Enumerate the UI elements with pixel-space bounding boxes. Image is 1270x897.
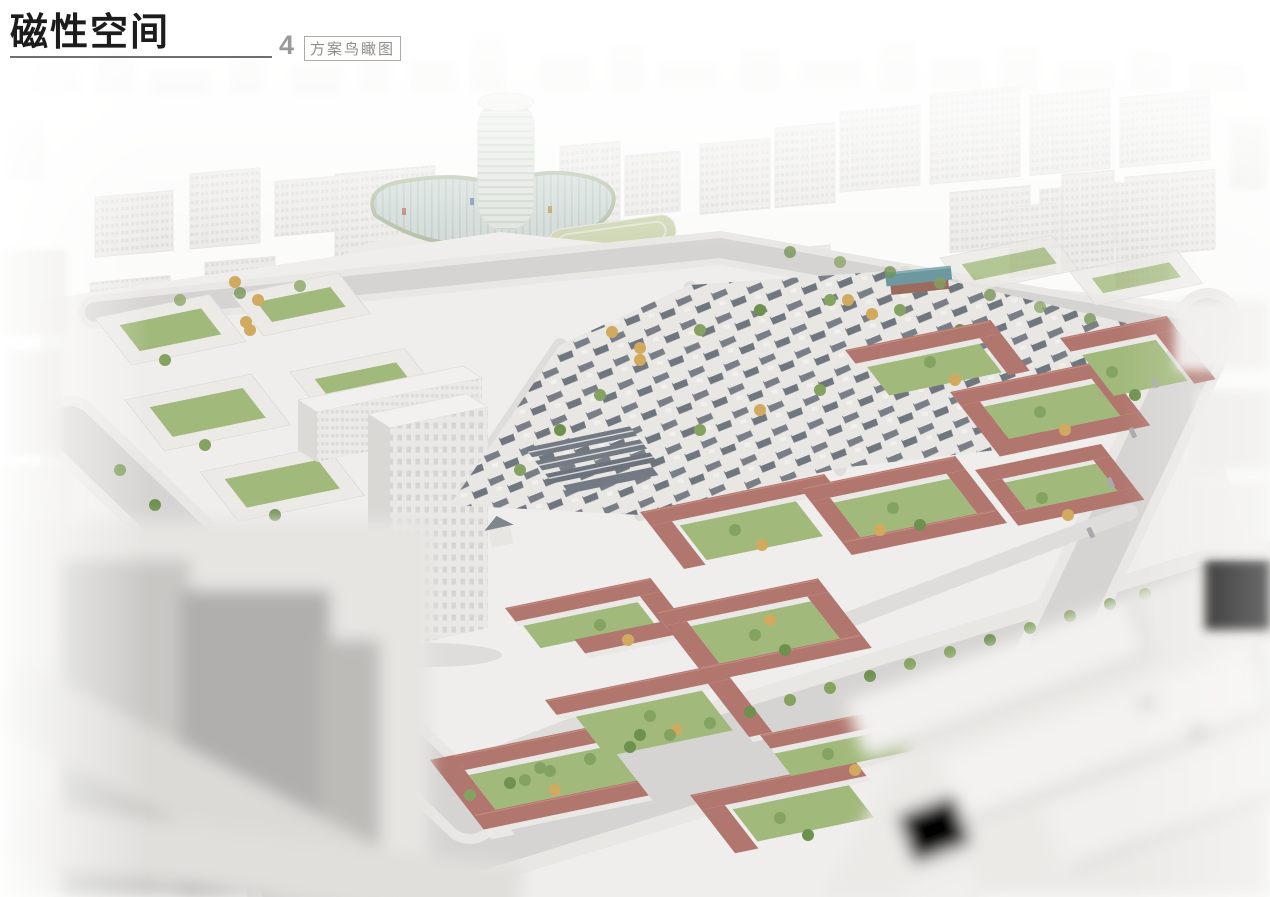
aerial-rendering xyxy=(0,0,1270,897)
right-fade xyxy=(1120,0,1270,897)
presentation-slide: 磁性空间 4 方案鸟瞰图 xyxy=(0,0,1270,897)
left-fade xyxy=(0,0,150,897)
horizon-fade xyxy=(0,0,1270,250)
